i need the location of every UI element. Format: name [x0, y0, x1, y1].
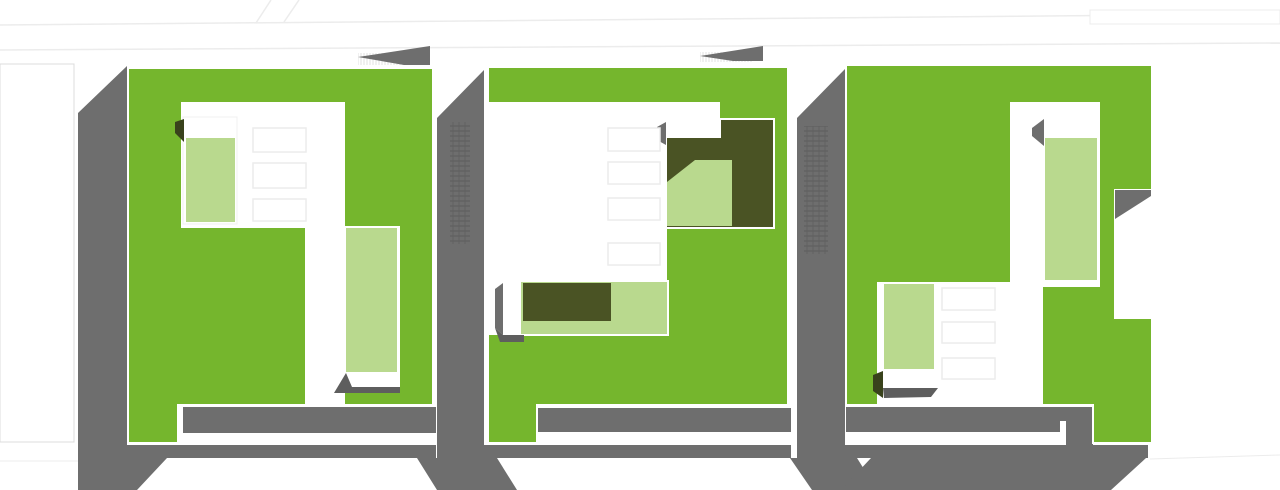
building3-pavilion-band — [883, 370, 937, 390]
site-plan-stage — [0, 0, 1280, 490]
building1-south-band — [127, 445, 436, 458]
building3-bar-window — [1060, 421, 1066, 433]
building2-skylight-2 — [608, 162, 660, 184]
building1-pavilion-lawn — [186, 138, 235, 222]
building2-skylight-4 — [608, 243, 660, 265]
building3-skylight-1 — [942, 288, 995, 310]
building1-skylight-1 — [253, 128, 306, 152]
building2-bar-deck — [523, 283, 611, 321]
building1-skylight-3 — [253, 199, 306, 221]
building3-inner-bar-right — [1066, 432, 1093, 445]
site-plan-rendering — [0, 0, 1280, 490]
building3-south-footing — [841, 458, 1146, 490]
wall-strip-b-windows — [804, 126, 828, 254]
building3-notch-wedge — [1115, 190, 1151, 219]
building1-inner-bar — [183, 407, 436, 433]
building2-skylight-3 — [608, 198, 660, 220]
building1-west-wall — [78, 66, 127, 458]
street-line-lower — [0, 43, 1280, 50]
street-line-bottomright — [1150, 455, 1280, 459]
building3-south-band — [845, 445, 1148, 458]
wall-strip-a-footing — [417, 458, 517, 490]
building2-bar-side-shadow — [495, 283, 503, 335]
building3-skylight-3 — [942, 358, 995, 379]
building3-pavilion-base-shadow — [883, 388, 938, 398]
building3-skylight-2 — [942, 322, 995, 343]
street-line-upper — [0, 14, 1280, 25]
building1-terrace-lawn — [346, 228, 397, 372]
building3-inner-bar — [846, 407, 1093, 432]
building1-skylight-2 — [253, 163, 306, 188]
building2-skylight-1 — [608, 128, 660, 151]
building1-west-wall-footing — [78, 458, 167, 490]
building2-bar-cap — [503, 281, 521, 335]
street-block-left — [0, 64, 74, 442]
street-branch-left — [256, 0, 271, 23]
building3-pavilion-lawn — [883, 283, 935, 370]
building2-south-band — [484, 445, 791, 458]
wall-strip-a-windows — [450, 122, 470, 244]
street-block-topright — [1090, 10, 1280, 24]
street-branch-right — [284, 0, 299, 22]
building3-terrace-lawn — [1045, 138, 1097, 280]
building2-inner-bar — [538, 408, 791, 432]
shape-layer — [0, 0, 1280, 490]
